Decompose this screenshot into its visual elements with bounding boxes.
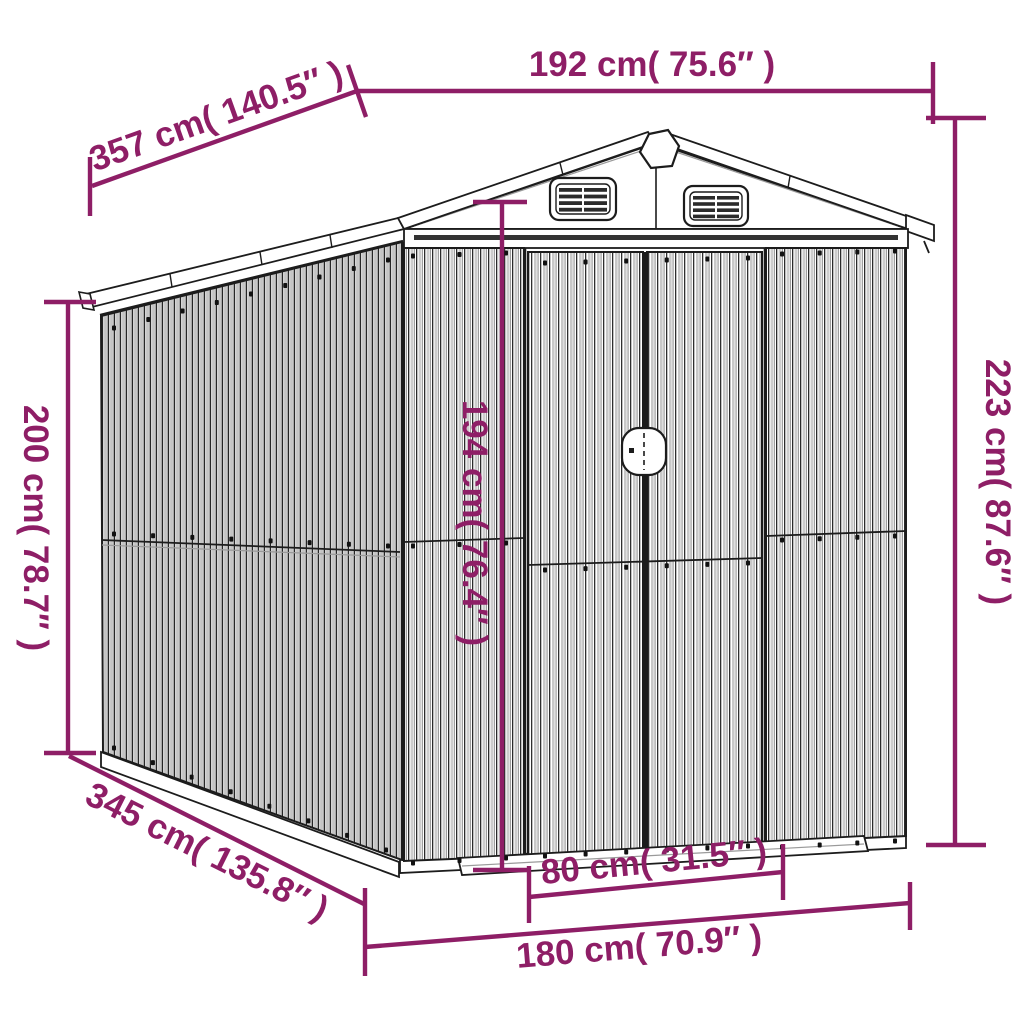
bolt-dot [229,537,233,542]
dim-base-width-label: 180 cm( 70.9″ ) [515,917,764,976]
shed-dimension-drawing: 192 cm( 75.6″ ) 357 cm( 140.5″ ) 200 cm(… [0,0,1024,1024]
bolt-dot [504,251,508,256]
bolt-dot [269,538,273,543]
bolt-dot [229,789,233,794]
bolt-dot [267,804,271,809]
bolt-dot [347,542,351,547]
bolt-dot [386,544,390,549]
bolt-dot [384,848,388,853]
dim-roof-width: 192 cm( 75.6″ ) [357,45,933,124]
bolt-dot [352,266,356,271]
door-track [404,229,908,248]
bolt-dot [624,259,628,264]
door-left [528,252,643,858]
bolt-dot [112,746,116,751]
bolt-dot [818,251,822,256]
bolt-dot [151,533,155,538]
bolt-dot [458,858,462,863]
dim-roof-depth-label: 357 cm( 140.5″ ) [84,53,348,179]
bolt-dot [543,568,547,573]
bolt-dot [818,536,822,541]
bolt-dot [112,532,116,537]
bolt-dot [504,541,508,546]
shed-illustration [79,130,934,877]
bolt-dot [306,818,310,823]
gutter-end-cap [906,215,934,241]
bolt-dot [249,292,253,297]
dim-base-width: 180 cm( 70.9″ ) [365,882,910,976]
bolt-dot [318,275,322,280]
bolt-dot [386,258,390,263]
dim-total-height: 223 cm( 87.6″ ) [926,118,1017,845]
dim-wall-height: 200 cm( 78.7″ ) [16,302,96,753]
bolt-dot [146,317,150,322]
bolt-dot [746,256,750,261]
dim-roof-depth: 357 cm( 140.5″ ) [84,53,366,216]
bolt-dot [543,261,547,266]
bolt-dot [893,249,897,254]
bolt-dot [780,538,784,543]
bolt-dot [584,566,588,571]
dim-wall-height-label: 200 cm( 78.7″ ) [16,405,55,651]
bolt-dot [190,535,194,540]
product-diagram: 192 cm( 75.6″ ) 357 cm( 140.5″ ) 200 cm(… [0,0,1024,1024]
bolt-dot [665,563,669,568]
bolt-dot [345,833,349,838]
bolt-dot [746,561,750,566]
bolt-dot [283,283,287,288]
bolt-dot [705,257,709,262]
bolt-dot [504,856,508,861]
bolt-dot [181,309,185,314]
gable-vent-right [684,186,748,226]
dim-door-height-label: 194 cm( 76.4″ ) [455,400,494,646]
bolt-dot [215,300,219,305]
door-right [647,252,762,852]
front-panel-right [766,248,906,843]
bolt-dot [855,535,859,540]
bolt-dot [308,540,312,545]
bolt-dot [855,250,859,255]
dim-roof-width-label: 192 cm( 75.6″ ) [529,45,775,84]
door-handle [622,428,666,475]
bolt-dot [411,861,415,866]
bolt-dot [818,843,822,848]
bolt-dot [458,252,462,257]
bolt-dot [893,839,897,844]
gutter-hook [924,241,929,253]
bolt-dot [112,326,116,331]
bolt-dot [190,775,194,780]
bolt-dot [705,562,709,567]
bolt-dot [584,260,588,265]
dim-total-height-label: 223 cm( 87.6″ ) [978,359,1017,605]
gable-vent-left [550,178,616,220]
bolt-dot [411,544,415,549]
bolt-dot [151,760,155,765]
bolt-dot [411,254,415,259]
bolt-dot [855,841,859,846]
bolt-dot [893,534,897,539]
bolt-dot [780,252,784,257]
bolt-dot [665,258,669,263]
bolt-dot [624,565,628,570]
